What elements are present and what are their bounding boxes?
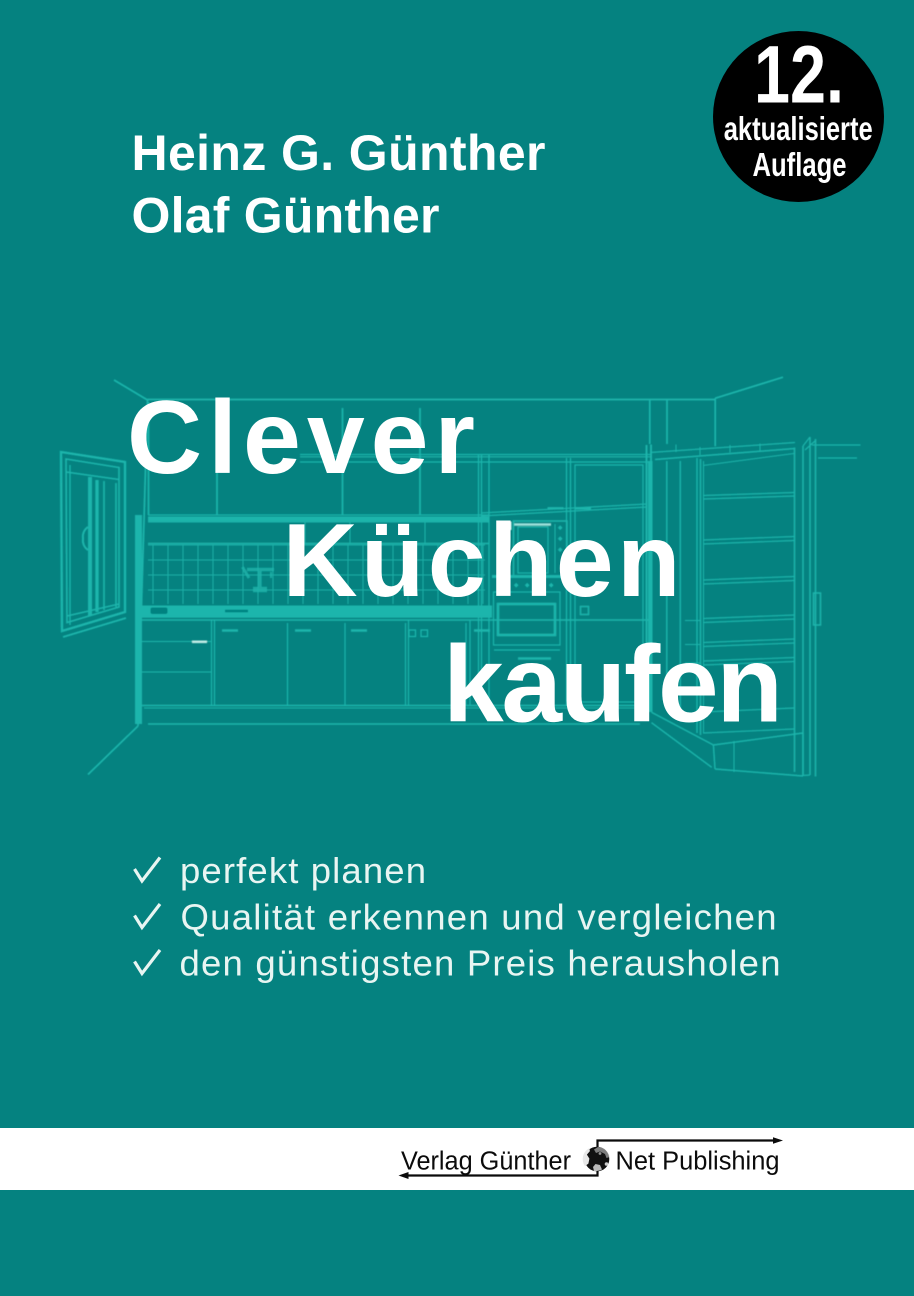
svg-text:perfekt planen: perfekt planen [180,850,426,891]
svg-text:aktualisierte: aktualisierte [724,110,873,147]
svg-text:Auflage: Auflage [753,146,847,183]
svg-text:12.: 12. [754,30,844,121]
svg-text:den günstigsten Preis herausho: den günstigsten Preis herausholen [180,943,781,984]
svg-text:Küchen: Küchen [283,503,681,619]
svg-text:Olaf Günther: Olaf Günther [132,188,440,244]
svg-text:kaufen: kaufen [443,624,783,746]
svg-text:Heinz G. Günther: Heinz G. Günther [132,125,546,181]
svg-text:Net Publishing: Net Publishing [616,1148,780,1176]
svg-text:Qualität erkennen und vergleic: Qualität erkennen und vergleichen [181,897,777,938]
svg-text:Verlag Günther: Verlag Günther [401,1148,571,1176]
